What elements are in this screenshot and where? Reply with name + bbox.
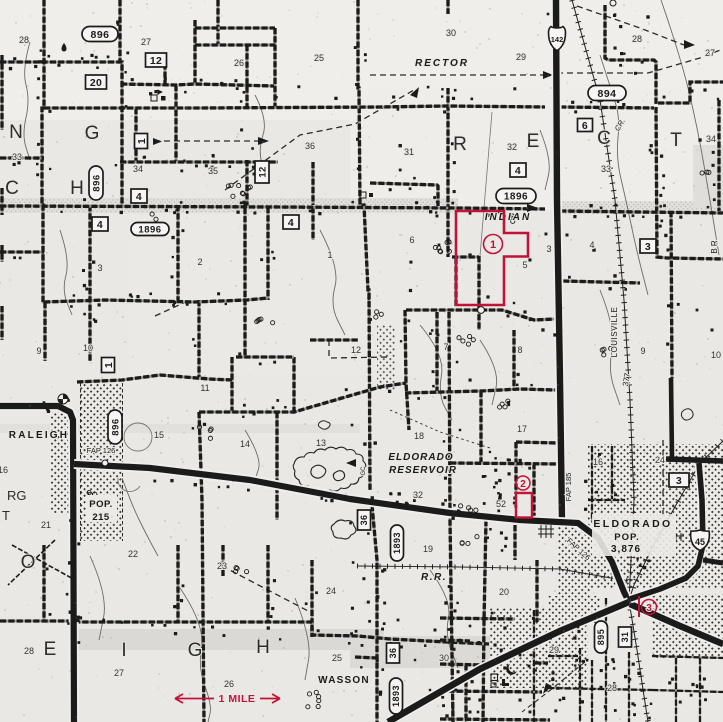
svg-text:27: 27 (114, 668, 124, 678)
svg-text:15: 15 (154, 430, 164, 440)
svg-text:4: 4 (515, 165, 521, 177)
svg-text:24: 24 (326, 586, 336, 596)
svg-text:3: 3 (676, 475, 682, 487)
svg-text:12: 12 (150, 55, 162, 67)
svg-text:896: 896 (110, 418, 121, 435)
svg-text:20: 20 (499, 587, 509, 597)
svg-text:32: 32 (507, 142, 517, 152)
svg-text:2: 2 (197, 257, 202, 267)
svg-text:10: 10 (83, 343, 93, 353)
svg-text:30: 30 (439, 653, 449, 663)
svg-text:28: 28 (24, 646, 34, 656)
svg-text:FAP 185: FAP 185 (564, 473, 573, 502)
svg-text:RESERVOIR: RESERVOIR (389, 465, 457, 476)
svg-text:22: 22 (128, 549, 138, 559)
svg-text:29: 29 (516, 52, 526, 62)
svg-text:29: 29 (549, 645, 559, 655)
svg-text:894: 894 (597, 88, 616, 100)
svg-text:C: C (597, 128, 611, 149)
svg-text:6: 6 (409, 235, 414, 245)
svg-text:18: 18 (414, 431, 424, 441)
svg-text:34: 34 (133, 164, 143, 174)
svg-text:1893: 1893 (391, 685, 401, 707)
svg-text:27: 27 (705, 48, 715, 58)
svg-text:215: 215 (92, 512, 110, 523)
svg-text:WASSON: WASSON (318, 675, 370, 686)
svg-text:28: 28 (632, 34, 642, 44)
svg-text:7: 7 (443, 342, 448, 352)
svg-text:35: 35 (208, 166, 218, 176)
svg-text:13: 13 (316, 438, 326, 448)
svg-text:23: 23 (217, 561, 227, 571)
svg-text:C: C (5, 178, 19, 199)
svg-text:27: 27 (141, 37, 151, 47)
svg-text:R.R.: R.R. (421, 572, 447, 583)
svg-text:896: 896 (91, 174, 102, 191)
svg-text:25: 25 (332, 653, 342, 663)
svg-text:4: 4 (589, 240, 594, 250)
svg-text:896: 896 (90, 29, 109, 41)
svg-text:E: E (44, 639, 57, 660)
svg-text:45: 45 (695, 537, 705, 547)
svg-text:19: 19 (423, 544, 433, 554)
svg-text:28: 28 (607, 683, 617, 693)
svg-text:12: 12 (257, 166, 268, 177)
svg-text:25: 25 (314, 53, 324, 63)
svg-text:RECTOR: RECTOR (415, 58, 469, 69)
svg-text:RG: RG (7, 488, 27, 503)
svg-text:I: I (121, 640, 126, 661)
svg-text:24: 24 (655, 455, 665, 465)
svg-text:1: 1 (103, 362, 115, 368)
svg-text:11: 11 (200, 383, 209, 393)
svg-text:1: 1 (490, 239, 496, 251)
svg-text:2: 2 (520, 479, 526, 490)
svg-text:4: 4 (97, 219, 103, 231)
svg-text:3: 3 (646, 603, 652, 614)
svg-text:6: 6 (582, 120, 588, 132)
svg-text:20: 20 (90, 77, 102, 89)
svg-text:H: H (256, 637, 270, 658)
svg-text:ELDORADO: ELDORADO (593, 518, 672, 530)
svg-text:1896: 1896 (504, 192, 528, 203)
svg-text:T: T (2, 508, 10, 523)
svg-text:5: 5 (522, 260, 527, 270)
svg-text:FAP 126: FAP 126 (87, 446, 116, 455)
svg-text:G: G (188, 640, 203, 661)
svg-text:9: 9 (36, 346, 41, 356)
svg-text:1: 1 (327, 250, 332, 260)
svg-text:1893: 1893 (392, 532, 402, 554)
svg-text:12: 12 (351, 345, 361, 355)
svg-text:GC: GC (361, 466, 367, 476)
svg-text:30: 30 (446, 28, 456, 38)
svg-text:4: 4 (288, 217, 294, 229)
svg-text:3: 3 (546, 244, 551, 254)
svg-text:10: 10 (711, 350, 721, 360)
svg-text:26: 26 (234, 58, 244, 68)
svg-text:T: T (670, 130, 682, 151)
svg-text:LOUISVILLE: LOUISVILLE (610, 307, 619, 358)
svg-text:G: G (85, 123, 100, 144)
svg-text:4: 4 (136, 191, 142, 203)
svg-text:O: O (21, 552, 36, 573)
svg-text:8: 8 (517, 345, 522, 355)
svg-text:1: 1 (136, 138, 148, 144)
svg-text:33: 33 (601, 164, 611, 174)
svg-text:B R: B R (710, 240, 719, 254)
svg-text:31: 31 (404, 147, 414, 157)
svg-text:3: 3 (645, 241, 651, 253)
svg-text:N: N (9, 122, 23, 143)
svg-text:28: 28 (19, 35, 29, 45)
svg-text:R: R (453, 134, 467, 155)
svg-text:142: 142 (551, 35, 564, 44)
svg-text:26: 26 (224, 679, 234, 689)
svg-text:RALEIGH: RALEIGH (9, 430, 69, 441)
svg-text:POP.: POP. (89, 499, 112, 510)
svg-text:INDIAN: INDIAN (485, 212, 531, 223)
svg-text:1896: 1896 (138, 224, 161, 235)
svg-text:E: E (527, 131, 540, 152)
svg-text:ELDORADO: ELDORADO (388, 452, 453, 463)
svg-text:17: 17 (517, 424, 527, 434)
svg-text:16: 16 (0, 465, 8, 475)
svg-text:14: 14 (240, 439, 250, 449)
svg-text:21: 21 (41, 520, 51, 530)
svg-text:3,876: 3,876 (611, 544, 641, 555)
svg-text:32: 32 (413, 490, 423, 500)
svg-text:34: 34 (706, 134, 716, 144)
svg-text:36: 36 (388, 648, 398, 659)
svg-text:31: 31 (620, 632, 630, 643)
svg-text:52: 52 (496, 499, 506, 509)
svg-text:36: 36 (305, 141, 315, 151)
svg-text:H: H (70, 178, 84, 199)
svg-text:895: 895 (596, 629, 606, 646)
svg-text:POP.: POP. (614, 532, 639, 543)
svg-text:33: 33 (12, 152, 22, 162)
svg-text:3: 3 (97, 263, 102, 273)
svg-text:36: 36 (359, 515, 369, 526)
svg-text:16: 16 (593, 457, 603, 467)
svg-text:1 MILE: 1 MILE (219, 693, 256, 705)
svg-text:9: 9 (640, 346, 645, 356)
